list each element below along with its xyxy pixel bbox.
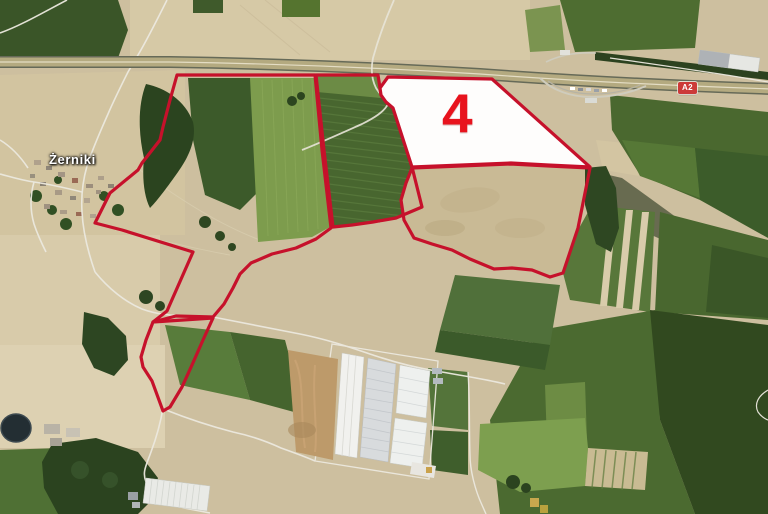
warehouse-building-3 [396, 365, 430, 418]
warehouse-building-4 [390, 418, 427, 468]
construction-detail [530, 498, 539, 507]
satellite-map-canvas [0, 0, 768, 514]
pond [1, 414, 31, 442]
construction-detail-2 [540, 505, 548, 513]
satellite-map[interactable]: Żerniki 4 A2 [0, 0, 768, 514]
